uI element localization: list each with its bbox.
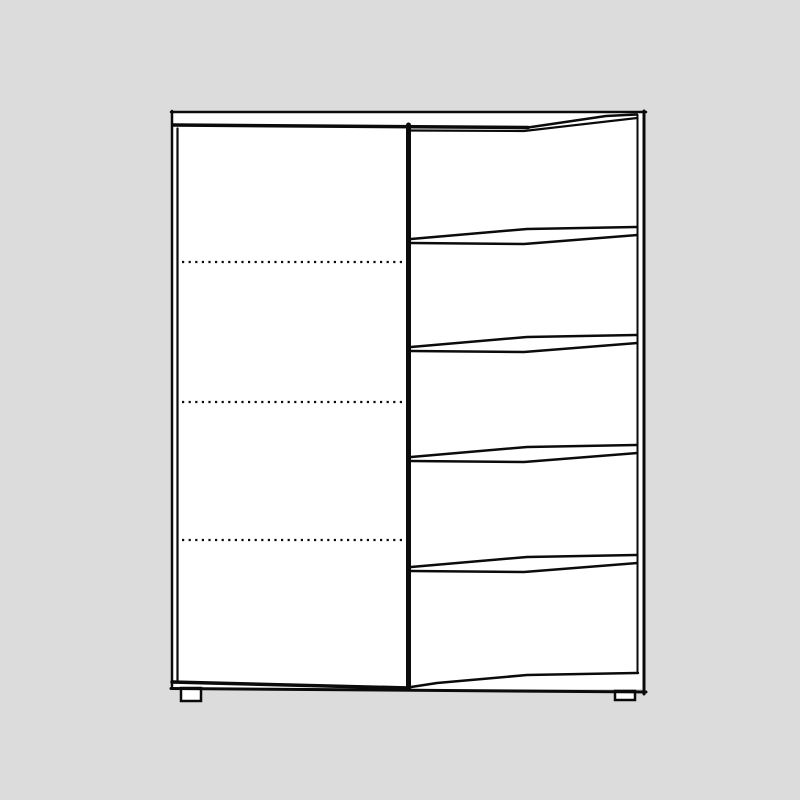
- cabinet-line-drawing: Line drawing of a cabinet with a left hi…: [0, 0, 800, 800]
- cabinet: [171, 111, 646, 701]
- top-panel-underside: [173, 125, 528, 128]
- product-drawing-canvas: Line drawing of a cabinet with a left hi…: [0, 0, 800, 800]
